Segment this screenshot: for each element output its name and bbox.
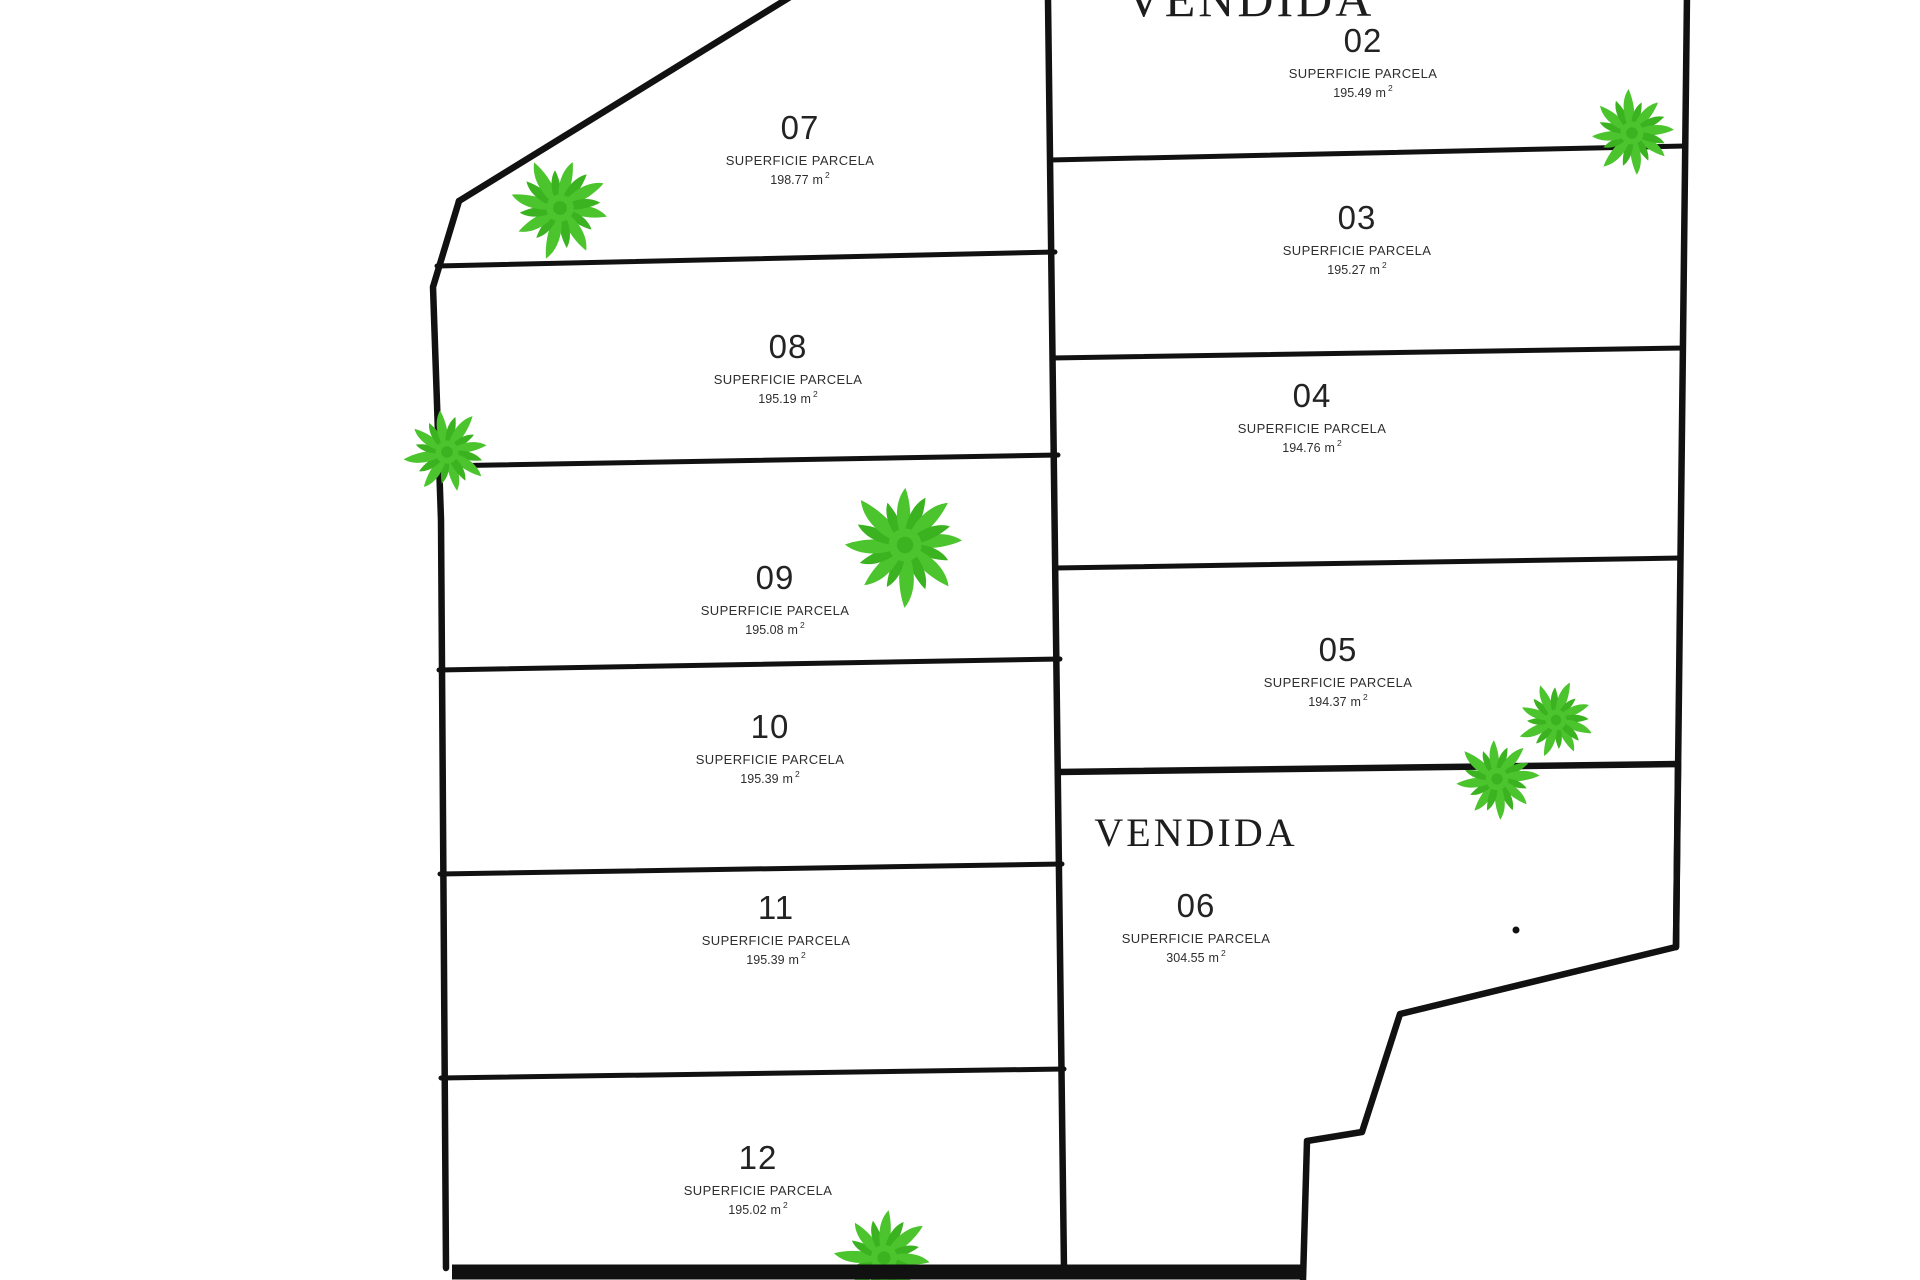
area-exponent: 2: [1221, 948, 1226, 958]
superficie-label: SUPERFICIE PARCELA: [701, 603, 850, 618]
parcel-number: 04: [1238, 377, 1387, 415]
area-number: 194.37: [1308, 695, 1346, 709]
plant-icon: [1439, 720, 1554, 834]
parcel-label-05: 05 SUPERFICIE PARCELA 194.37m2: [1264, 631, 1413, 709]
area-value: 195.08m2: [701, 619, 850, 637]
area-exponent: 2: [801, 950, 806, 960]
area-number: 198.77: [770, 173, 808, 187]
area-unit: m: [1325, 441, 1335, 455]
area-value: 195.39m2: [696, 768, 845, 786]
parcel-number: 09: [701, 559, 850, 597]
divider-10-11: [440, 864, 1062, 874]
area-exponent: 2: [825, 170, 830, 180]
parcel-number: 07: [726, 109, 875, 147]
area-unit: m: [1351, 695, 1361, 709]
left-boundary: [433, 201, 459, 1268]
divider-07-08: [437, 252, 1055, 266]
superficie-label: SUPERFICIE PARCELA: [1238, 421, 1387, 436]
divider-03-04: [1052, 348, 1683, 358]
area-number: 195.19: [758, 392, 796, 406]
area-number: 195.02: [728, 1203, 766, 1217]
parcel-number: 02: [1289, 22, 1438, 60]
area-exponent: 2: [795, 769, 800, 779]
area-unit: m: [783, 772, 793, 786]
parcel-label-07: 07 SUPERFICIE PARCELA 198.77m2: [726, 109, 875, 187]
superficie-label: SUPERFICIE PARCELA: [1289, 66, 1438, 81]
plant-icon: [396, 403, 494, 499]
area-number: 195.49: [1333, 86, 1371, 100]
parcel-label-06: 06 SUPERFICIE PARCELA 304.55m2: [1122, 887, 1271, 965]
divider-11-12: [441, 1069, 1064, 1078]
parcel-label-11: 11 SUPERFICIE PARCELA 195.39m2: [702, 889, 851, 967]
area-unit: m: [788, 623, 798, 637]
area-value: 195.19m2: [714, 388, 863, 406]
area-unit: m: [1370, 263, 1380, 277]
parcel-label-04: 04 SUPERFICIE PARCELA 194.76m2: [1238, 377, 1387, 455]
area-value: 194.76m2: [1238, 437, 1387, 455]
area-unit: m: [1209, 951, 1219, 965]
area-exponent: 2: [1388, 83, 1393, 93]
parcel-number: 10: [696, 708, 845, 746]
area-unit: m: [789, 953, 799, 967]
parcel-number: 06: [1122, 887, 1271, 925]
survey-point-dot: [1513, 927, 1520, 934]
area-value: 198.77m2: [726, 169, 875, 187]
area-value: 304.55m2: [1122, 947, 1271, 965]
area-exponent: 2: [1337, 438, 1342, 448]
parcel-number: 11: [702, 889, 851, 927]
parcel-label-08: 08 SUPERFICIE PARCELA 195.19m2: [714, 328, 863, 406]
plot-outline-lines: [433, 0, 1687, 1280]
area-value: 195.02m2: [684, 1199, 833, 1217]
area-value: 194.37m2: [1264, 691, 1413, 709]
superficie-label: SUPERFICIE PARCELA: [684, 1183, 833, 1198]
area-exponent: 2: [813, 389, 818, 399]
parcel-label-09: 09 SUPERFICIE PARCELA 195.08m2: [701, 559, 850, 637]
area-unit: m: [771, 1203, 781, 1217]
parcel-plan-canvas: VENDIDA VENDIDA 02 SUPERFICIE PARCELA 19…: [0, 0, 1920, 1280]
plant-icon: [844, 487, 962, 608]
superficie-label: SUPERFICIE PARCELA: [1283, 243, 1432, 258]
area-number: 195.39: [740, 772, 778, 786]
area-number: 195.08: [745, 623, 783, 637]
area-exponent: 2: [783, 1200, 788, 1210]
parcel-number: 05: [1264, 631, 1413, 669]
parcel-label-03: 03 SUPERFICIE PARCELA 195.27m2: [1283, 199, 1432, 277]
parcel-label-02: 02 SUPERFICIE PARCELA 195.49m2: [1289, 22, 1438, 100]
area-number: 194.76: [1282, 441, 1320, 455]
area-unit: m: [813, 173, 823, 187]
divider-08-09: [436, 455, 1058, 466]
area-number: 195.27: [1327, 263, 1365, 277]
superficie-label: SUPERFICIE PARCELA: [714, 372, 863, 387]
area-number: 195.39: [746, 953, 784, 967]
area-exponent: 2: [1363, 692, 1368, 702]
superficie-label: SUPERFICIE PARCELA: [1264, 675, 1413, 690]
area-exponent: 2: [1382, 260, 1387, 270]
parcel-number: 08: [714, 328, 863, 366]
plant-icon: [1571, 75, 1689, 193]
area-number: 304.55: [1166, 951, 1204, 965]
divider-04-05: [1055, 558, 1680, 568]
superficie-label: SUPERFICIE PARCELA: [696, 752, 845, 767]
area-exponent: 2: [800, 620, 805, 630]
parcel-plan-drawing: [0, 0, 1920, 1280]
superficie-label: SUPERFICIE PARCELA: [726, 153, 875, 168]
area-value: 195.27m2: [1283, 259, 1432, 277]
divider-09-10: [439, 659, 1060, 670]
area-value: 195.49m2: [1289, 82, 1438, 100]
divider-02-03: [1050, 146, 1685, 160]
superficie-label: SUPERFICIE PARCELA: [702, 933, 851, 948]
parcel-number: 12: [684, 1139, 833, 1177]
superficie-label: SUPERFICIE PARCELA: [1122, 931, 1271, 946]
parcel-number: 03: [1283, 199, 1432, 237]
central-divider: [1048, 0, 1064, 1270]
parcel-label-10: 10 SUPERFICIE PARCELA 195.39m2: [696, 708, 845, 786]
parcel-label-12: 12 SUPERFICIE PARCELA 195.02m2: [684, 1139, 833, 1217]
vendida-label-parcel-06: VENDIDA: [1094, 809, 1297, 856]
area-unit: m: [1376, 86, 1386, 100]
area-value: 195.39m2: [702, 949, 851, 967]
area-unit: m: [801, 392, 811, 406]
